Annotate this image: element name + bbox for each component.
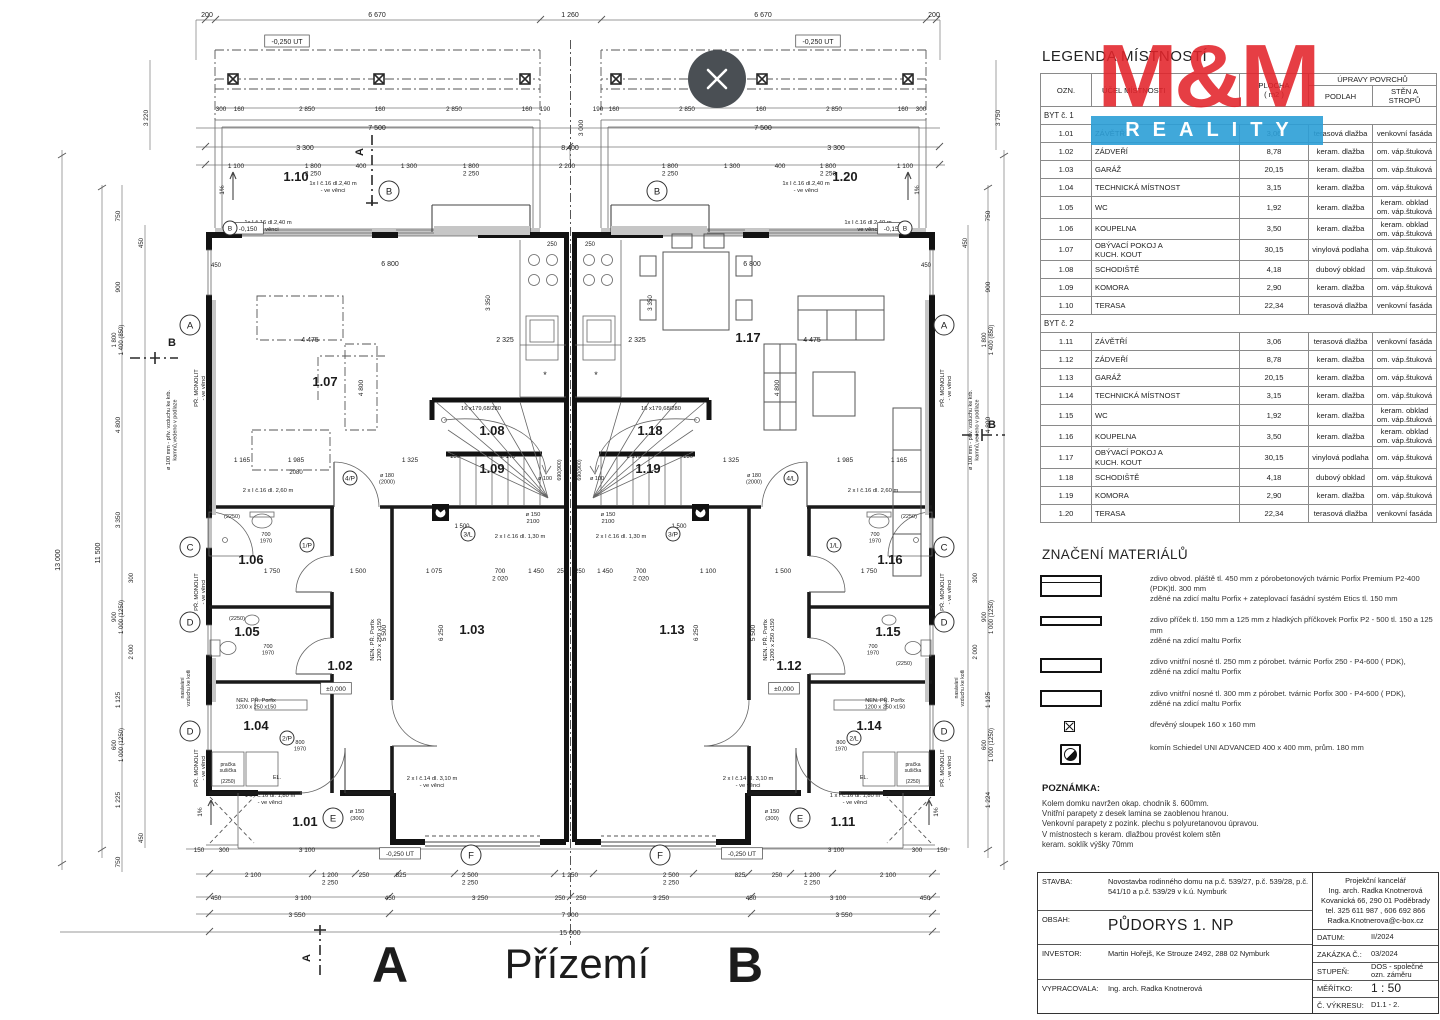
svg-text:PŘ. MONOLIT- ve věnci: PŘ. MONOLIT- ve věnci — [938, 369, 953, 407]
svg-text:2/L: 2/L — [849, 736, 859, 743]
svg-text:6 250: 6 250 — [438, 624, 445, 641]
svg-text:Přízemí: Přízemí — [505, 940, 650, 987]
svg-text:1 2002 250: 1 2002 250 — [804, 872, 821, 887]
svg-text:1 450: 1 450 — [528, 568, 544, 575]
svg-text:450: 450 — [211, 895, 222, 902]
investor-value: Martin Hořejš, Ke Strouze 2492, 288 02 N… — [1106, 945, 1272, 978]
svg-text:-0,250 UT: -0,250 UT — [386, 851, 414, 858]
svg-text:2 x I č.16 dl. 1,30 m: 2 x I č.16 dl. 1,30 m — [596, 534, 647, 540]
note-line: Vnitřní parapety z desek lamina se zaobl… — [1042, 809, 1438, 819]
svg-text:150: 150 — [194, 847, 205, 854]
vykres-label: Č. VÝKRESU: — [1313, 1001, 1369, 1010]
svg-text:1 8002 250: 1 8002 250 — [662, 163, 679, 178]
svg-text:1 100: 1 100 — [228, 163, 245, 170]
vypracovala-label: VYPRACOVALA: — [1038, 980, 1106, 1013]
svg-text:(2250): (2250) — [221, 779, 236, 785]
wall-450-icon — [1040, 575, 1102, 597]
svg-text:1.10: 1.10 — [283, 169, 308, 184]
svg-text:160: 160 — [756, 106, 767, 113]
svg-text:7 500: 7 500 — [754, 125, 772, 132]
svg-text:(2250): (2250) — [901, 514, 917, 520]
svg-text:7001970: 7001970 — [869, 532, 881, 545]
col-upravy: ÚPRAVY POVRCHŮ — [1309, 74, 1437, 86]
svg-text:8001970: 8001970 — [294, 740, 306, 753]
svg-text:ø 1502100: ø 1502100 — [526, 512, 541, 525]
svg-text:1 x I č.16 dl. 1,80 m- ve věnc: 1 x I č.16 dl. 1,80 m- ve věnci — [830, 793, 881, 806]
svg-text:1.17: 1.17 — [735, 330, 760, 345]
svg-text:B: B — [228, 226, 233, 233]
svg-text:3 000: 3 000 — [578, 119, 585, 136]
svg-text:1 2002 250: 1 2002 250 — [322, 872, 339, 887]
investor-label: INVESTOR: — [1038, 945, 1106, 978]
svg-text:2 x I č.16 dl. 1,30 m: 2 x I č.16 dl. 1,30 m — [495, 534, 546, 540]
svg-text:250: 250 — [575, 569, 586, 575]
svg-text:1/L: 1/L — [829, 543, 839, 550]
svg-text:B: B — [727, 937, 763, 993]
note-line: Venkovní parapety z pozink. plechu s pol… — [1042, 819, 1438, 829]
material-item: zdivo obvod. pláště tl. 450 mm z pórobet… — [1040, 574, 1438, 605]
meritko-label: MĚŘÍTKO: — [1313, 984, 1369, 993]
svg-text:2 100: 2 100 — [880, 872, 897, 879]
svg-text:3 100: 3 100 — [299, 847, 316, 854]
legend-room-row: 1.05WC1,92keram. dlažbakeram. obkladom. … — [1041, 197, 1437, 218]
svg-text:1 250: 1 250 — [562, 872, 579, 879]
svg-text:1.08: 1.08 — [479, 423, 504, 438]
zakazka-value: 03/2024 — [1369, 950, 1398, 959]
legend-title: LEGENDA MÍSTNOSTÍ — [1042, 48, 1438, 65]
svg-text:250: 250 — [772, 872, 783, 879]
svg-text:EL.: EL. — [273, 775, 282, 781]
wall-300-icon — [1040, 690, 1102, 707]
svg-text:6 800: 6 800 — [381, 261, 399, 268]
svg-text:1%: 1% — [914, 185, 921, 195]
close-button[interactable] — [688, 50, 746, 108]
legend-room-row: 1.14TECHNICKÁ MÍSTNOST3,15keram. dlažbao… — [1041, 386, 1437, 404]
svg-text:2 175: 2 175 — [500, 454, 516, 460]
svg-text:3 550: 3 550 — [835, 912, 852, 919]
svg-text:6 670: 6 670 — [368, 12, 386, 19]
svg-text:A: A — [941, 321, 948, 332]
svg-text:NEN. PŘ. Porfix1200 x 250 x150: NEN. PŘ. Porfix1200 x 250 x150 — [368, 619, 383, 662]
svg-text:6001 000 (1250): 6001 000 (1250) — [982, 728, 995, 762]
svg-text:160: 160 — [234, 106, 245, 113]
svg-text:1 985: 1 985 — [837, 457, 854, 464]
svg-text:B: B — [903, 226, 908, 233]
material-item: zdivo vnitřní nosné tl. 250 mm z pórobet… — [1040, 657, 1438, 678]
svg-text:±0,000: ±0,000 — [774, 686, 794, 693]
svg-text:NEN. PŘ. Porfix1200 x 250 x150: NEN. PŘ. Porfix1200 x 250 x150 — [761, 619, 776, 662]
material-item: komín Schiedel UNI ADVANCED 400 x 400 mm… — [1040, 743, 1438, 765]
svg-text:150: 150 — [450, 454, 461, 460]
svg-text:690(900): 690(900) — [577, 459, 583, 480]
svg-text:ø 100 mm - přív. vzduchu ke kr: ø 100 mm - přív. vzduchu ke krb.kamnů,ve… — [968, 390, 981, 470]
svg-text:ø 180(2000): ø 180(2000) — [379, 473, 395, 486]
svg-text:±0,000: ±0,000 — [326, 686, 346, 693]
svg-text:B: B — [654, 187, 660, 198]
meritko-value: 1 : 50 — [1369, 982, 1401, 996]
svg-text:3 300: 3 300 — [296, 145, 314, 152]
svg-text:ø 100: ø 100 — [538, 476, 552, 482]
svg-text:2/P: 2/P — [282, 736, 293, 743]
svg-text:A: A — [187, 321, 194, 332]
svg-text:7002 020: 7002 020 — [492, 568, 508, 582]
svg-text:1.20: 1.20 — [832, 169, 857, 184]
svg-text:250: 250 — [555, 895, 566, 902]
svg-text:7 500: 7 500 — [368, 125, 386, 132]
svg-text:825: 825 — [396, 872, 407, 879]
svg-text:1.03: 1.03 — [459, 622, 484, 637]
materials-legend: ZNAČENÍ MATERIÁLŮ zdivo obvod. pláště tl… — [1040, 547, 1438, 766]
svg-text:2 x I č.14 dl. 3,10 m- ve věnc: 2 x I č.14 dl. 3,10 m- ve věnci — [407, 776, 458, 789]
svg-text:300: 300 — [219, 847, 230, 854]
room-legend-table: OZN. ÚČEL MÍSTNOSTI PLOCHA( m2 ) ÚPRAVY … — [1040, 73, 1437, 523]
svg-text:7002 020: 7002 020 — [633, 568, 649, 582]
svg-text:*: * — [543, 370, 547, 380]
legend-room-row: 1.10TERASA22,34terasová dlažbavenkovní f… — [1041, 296, 1437, 314]
svg-text:1 300: 1 300 — [401, 163, 418, 170]
legend-room-row: 1.13GARÁŽ20,15keram. dlažbaom. váp.štuko… — [1041, 368, 1437, 386]
svg-text:7001970: 7001970 — [260, 532, 272, 545]
svg-text:4 475: 4 475 — [301, 337, 319, 344]
svg-text:450: 450 — [139, 237, 145, 248]
svg-text:3 350: 3 350 — [115, 511, 122, 528]
svg-text:1.13: 1.13 — [659, 622, 684, 637]
legend-room-row: 1.17OBÝVACÍ POKOJ AKUCH. KOUT30,15vinylo… — [1041, 447, 1437, 468]
svg-text:1 985: 1 985 — [288, 457, 305, 464]
svg-text:2 000: 2 000 — [973, 644, 979, 660]
svg-text:1.07: 1.07 — [312, 374, 337, 389]
svg-text:ø 1502100: ø 1502100 — [601, 512, 616, 525]
svg-text:ø 100: ø 100 — [590, 476, 604, 482]
svg-text:250: 250 — [547, 242, 558, 248]
svg-text:7 900: 7 900 — [561, 912, 578, 919]
svg-text:1x I č.16 dl.2,40 m- ve věnci: 1x I č.16 dl.2,40 m- ve věnci — [782, 181, 830, 194]
note-line: V místnostech s keram. dlažbou provést k… — [1042, 830, 1438, 840]
drawing-sheet: .w6{stroke:#121212;stroke-width:6;fill:n… — [0, 0, 1440, 1020]
svg-text:1.01: 1.01 — [292, 814, 317, 829]
legend-room-row: 1.01ZÁVĚTŘÍ3,06terasová dlažbavenkovní f… — [1041, 125, 1437, 143]
svg-text:-0,250 UT: -0,250 UT — [728, 851, 756, 858]
svg-text:1.11: 1.11 — [831, 814, 856, 829]
svg-text:4 800: 4 800 — [115, 416, 122, 433]
svg-text:200: 200 — [928, 12, 940, 19]
svg-text:2 175: 2 175 — [626, 454, 642, 460]
svg-text:3 220: 3 220 — [143, 109, 150, 126]
svg-text:13 000: 13 000 — [55, 549, 62, 571]
svg-text:450: 450 — [963, 237, 969, 248]
svg-text:1 224: 1 224 — [985, 791, 992, 808]
svg-text:pračkasušička: pračkasušička — [905, 762, 922, 774]
legend-room-row: 1.11ZÁVĚTŘÍ3,06terasová dlažbavenkovní f… — [1041, 332, 1437, 350]
svg-text:900: 900 — [115, 281, 122, 292]
svg-text:PŘ. MONOLIT- ve věnci: PŘ. MONOLIT- ve věnci — [938, 749, 953, 787]
svg-text:F: F — [468, 851, 474, 862]
svg-text:2 850: 2 850 — [826, 106, 842, 113]
svg-text:190: 190 — [540, 106, 551, 113]
svg-text:ø 150(300): ø 150(300) — [350, 809, 365, 822]
svg-text:3 100: 3 100 — [828, 847, 845, 854]
svg-text:2 850: 2 850 — [299, 106, 315, 113]
legend-room-row: 1.07OBÝVACÍ POKOJ AKUCH. KOUT30,15vinylo… — [1041, 239, 1437, 260]
svg-text:4 475: 4 475 — [803, 337, 821, 344]
wall-150-icon — [1040, 616, 1102, 626]
svg-text:A: A — [372, 937, 408, 993]
col-ozn: OZN. — [1041, 74, 1092, 107]
svg-text:300: 300 — [129, 572, 135, 583]
office-info: Projekční kancelářIng. arch. Radka Knotn… — [1313, 873, 1438, 930]
floor-plan-drawing: .w6{stroke:#121212;stroke-width:6;fill:n… — [0, 0, 1030, 1020]
svg-text:1/P: 1/P — [302, 543, 313, 550]
svg-text:9001 000 (1250): 9001 000 (1250) — [982, 600, 995, 634]
svg-text:ø 150(300): ø 150(300) — [765, 809, 780, 822]
svg-text:1 225: 1 225 — [115, 791, 122, 808]
svg-text:160: 160 — [375, 106, 386, 113]
svg-text:(2250): (2250) — [229, 616, 245, 622]
svg-text:6 670: 6 670 — [754, 12, 772, 19]
svg-text:900: 900 — [985, 281, 992, 292]
svg-text:2080: 2080 — [289, 470, 303, 476]
svg-text:3 300: 3 300 — [827, 145, 845, 152]
svg-text:3 350: 3 350 — [647, 295, 654, 311]
svg-text:3/P: 3/P — [668, 532, 679, 539]
svg-text:1 125: 1 125 — [115, 691, 122, 708]
svg-text:825: 825 — [735, 872, 746, 879]
svg-text:5 500: 5 500 — [750, 624, 757, 641]
svg-text:B: B — [988, 419, 996, 431]
svg-text:300: 300 — [916, 106, 927, 113]
svg-text:(2250): (2250) — [896, 661, 912, 667]
svg-text:6 250: 6 250 — [693, 624, 700, 641]
svg-text:EL.: EL. — [860, 775, 869, 781]
svg-text:1 260: 1 260 — [561, 12, 579, 19]
svg-text:15 000: 15 000 — [559, 930, 581, 937]
svg-text:1.04: 1.04 — [243, 718, 269, 733]
svg-text:11 500: 11 500 — [95, 542, 102, 563]
svg-text:B: B — [386, 187, 392, 198]
svg-text:400: 400 — [356, 163, 367, 170]
title-block: STAVBA: Novostavba rodinného domu na p.č… — [1037, 872, 1439, 1014]
legend-room-row: 1.16KOUPELNA3,50keram. dlažbakeram. obkl… — [1041, 426, 1437, 447]
svg-text:160: 160 — [522, 106, 533, 113]
svg-text:8 400: 8 400 — [561, 145, 579, 152]
wall-250-icon — [1040, 658, 1102, 673]
legend-room-row: 1.08SCHODIŠTĚ4,18dubový obkladom. váp.št… — [1041, 260, 1437, 278]
svg-text:1 075: 1 075 — [426, 568, 443, 575]
svg-text:16 x179,68/280: 16 x179,68/280 — [461, 406, 501, 412]
svg-text:300: 300 — [973, 572, 979, 583]
svg-text:250: 250 — [585, 242, 596, 248]
svg-text:450: 450 — [211, 263, 222, 269]
svg-text:1.06: 1.06 — [238, 552, 263, 567]
legend-room-row: 1.04TECHNICKÁ MÍSTNOST3,15keram. dlažbao… — [1041, 179, 1437, 197]
svg-text:1.15: 1.15 — [875, 624, 900, 639]
material-item: zdivo příček tl. 150 mm a 125 mm z hladk… — [1040, 615, 1438, 646]
svg-text:D: D — [187, 618, 194, 629]
svg-text:1 125: 1 125 — [985, 691, 992, 708]
materials-title: ZNAČENÍ MATERIÁLŮ — [1042, 547, 1438, 562]
svg-text:3 250: 3 250 — [653, 895, 670, 902]
svg-text:1x I č.16 dl.2,40 m- ve věnci: 1x I č.16 dl.2,40 m- ve věnci — [309, 181, 357, 194]
svg-text:2 5002 250: 2 5002 250 — [462, 872, 479, 887]
svg-text:1 750: 1 750 — [264, 568, 281, 575]
svg-text:450: 450 — [920, 895, 931, 902]
svg-text:(2250): (2250) — [224, 514, 240, 520]
svg-text:1 8001 400 (850): 1 8001 400 (850) — [112, 325, 125, 356]
svg-text:E: E — [330, 814, 336, 825]
svg-text:-0,150: -0,150 — [239, 226, 258, 233]
svg-text:nasávánívzduchu ke kotli: nasávánívzduchu ke kotli — [954, 670, 966, 707]
svg-text:3 750: 3 750 — [995, 109, 1002, 126]
svg-text:200: 200 — [201, 12, 213, 19]
legend-section-row: BYT č. 2 — [1041, 314, 1437, 332]
svg-text:250: 250 — [576, 895, 587, 902]
svg-text:1.18: 1.18 — [637, 423, 662, 438]
stavba-value: Novostavba rodinného domu na p.č. 539/27… — [1106, 873, 1312, 910]
svg-text:2 850: 2 850 — [679, 106, 695, 113]
col-podlah: PODLAH — [1309, 86, 1373, 107]
svg-text:3 100: 3 100 — [830, 895, 847, 902]
svg-text:750: 750 — [115, 210, 122, 221]
svg-text:2 000: 2 000 — [129, 644, 135, 660]
svg-text:1.19: 1.19 — [635, 461, 660, 476]
legend-room-row: 1.15WC1,92keram. dlažbakeram. obkladom. … — [1041, 404, 1437, 425]
svg-text:8001970: 8001970 — [835, 740, 847, 753]
plan-labels: 2006 6701 2606 670200-0,250 UT-0,250 UT3… — [55, 12, 1002, 962]
legend-room-row: 1.18SCHODIŠTĚ4,18dubový obkladom. váp.št… — [1041, 468, 1437, 486]
legend-room-row: 1.19KOMORA2,90keram. dlažbaom. váp.štuko… — [1041, 486, 1437, 504]
svg-text:D: D — [187, 727, 194, 738]
svg-text:9001 000 (1250): 9001 000 (1250) — [112, 600, 125, 634]
svg-text:3 250: 3 250 — [472, 895, 489, 902]
svg-text:3/L: 3/L — [463, 532, 473, 539]
svg-text:250: 250 — [359, 872, 370, 879]
col-plocha: PLOCHA( m2 ) — [1240, 74, 1309, 107]
wood-post-icon — [1064, 721, 1075, 732]
svg-text:-0,250 UT: -0,250 UT — [802, 39, 834, 46]
svg-text:1.14: 1.14 — [856, 718, 882, 733]
svg-text:F: F — [657, 851, 663, 862]
svg-text:PŘ. MONOLIT- ve věnci: PŘ. MONOLIT- ve věnci — [192, 369, 207, 407]
svg-text:1 8001 400 (850): 1 8001 400 (850) — [982, 325, 995, 356]
svg-text:190: 190 — [593, 106, 604, 113]
svg-text:1 100: 1 100 — [897, 163, 914, 170]
svg-text:1 165: 1 165 — [891, 457, 908, 464]
svg-text:450: 450 — [746, 895, 757, 902]
svg-text:150: 150 — [937, 847, 948, 854]
svg-text:ø 100 mm - přív. vzduchu ke kr: ø 100 mm - přív. vzduchu ke krb.kamnů,ve… — [166, 390, 179, 470]
svg-text:1.05: 1.05 — [234, 624, 259, 639]
svg-text:1 x I č.16 dl. 1,80 m- ve věnc: 1 x I č.16 dl. 1,80 m- ve věnci — [245, 793, 296, 806]
svg-text:2 200: 2 200 — [559, 163, 576, 170]
note-line: Kolem domku navržen okap. chodník š. 600… — [1042, 799, 1438, 809]
svg-text:160: 160 — [898, 106, 909, 113]
material-item: zdivo vnitřní nosné tl. 300 mm z pórobet… — [1040, 689, 1438, 710]
obsah-label: OBSAH: — [1038, 911, 1106, 944]
datum-value: II/2024 — [1369, 933, 1394, 942]
svg-text:1.09: 1.09 — [479, 461, 504, 476]
svg-text:(2250): (2250) — [906, 779, 921, 785]
svg-text:1 8002 250: 1 8002 250 — [463, 163, 480, 178]
svg-text:750: 750 — [115, 856, 122, 867]
svg-text:2 x I č.14 dl. 3,10 m- ve věnc: 2 x I č.14 dl. 3,10 m- ve věnci — [723, 776, 774, 789]
svg-text:300: 300 — [912, 847, 923, 854]
datum-label: DATUM: — [1313, 933, 1369, 942]
vypracovala-value: Ing. arch. Radka Knotnerová — [1106, 980, 1205, 1013]
svg-text:2 5002 250: 2 5002 250 — [663, 872, 680, 887]
svg-text:1 300: 1 300 — [724, 163, 741, 170]
note-line: keram. soklík výšky 70mm — [1042, 840, 1438, 850]
plan-footer-labels: APřízemíB — [372, 937, 763, 993]
svg-text:2 325: 2 325 — [628, 337, 646, 344]
svg-text:450: 450 — [385, 895, 396, 902]
notes-title: POZNÁMKA: — [1042, 783, 1438, 794]
notes: POZNÁMKA: Kolem domku navržen okap. chod… — [1040, 783, 1438, 850]
svg-text:pračkasušička: pračkasušička — [220, 762, 237, 774]
svg-text:PŘ. MONOLIT- ve věnci: PŘ. MONOLIT- ve věnci — [192, 573, 207, 611]
material-item: dřevěný sloupek 160 x 160 mm — [1040, 720, 1438, 732]
svg-text:450: 450 — [921, 263, 932, 269]
svg-text:1 325: 1 325 — [402, 457, 419, 464]
svg-text:1 500: 1 500 — [350, 568, 367, 575]
legend-room-row: 1.12ZÁDVEŘÍ8,78keram. dlažbaom. váp.štuk… — [1041, 350, 1437, 368]
svg-text:1%: 1% — [219, 185, 226, 195]
svg-text:A: A — [354, 148, 366, 156]
svg-text:2 850: 2 850 — [446, 106, 462, 113]
svg-text:1 165: 1 165 — [234, 457, 251, 464]
info-panel: LEGENDA MÍSTNOSTÍ OZN. ÚČEL MÍSTNOSTI PL… — [1040, 48, 1438, 850]
svg-text:C: C — [187, 543, 194, 554]
chimney-icon — [1060, 744, 1081, 765]
svg-text:4 800: 4 800 — [358, 379, 365, 396]
svg-text:250: 250 — [557, 569, 568, 575]
svg-text:1.12: 1.12 — [776, 658, 801, 673]
svg-text:1 500: 1 500 — [775, 568, 792, 575]
col-ucel: ÚČEL MÍSTNOSTI — [1092, 74, 1240, 107]
svg-text:2 x I č.16 dl. 2,60 m: 2 x I č.16 dl. 2,60 m — [848, 488, 899, 494]
svg-text:16 x179,68/280: 16 x179,68/280 — [641, 406, 681, 412]
svg-text:150: 150 — [683, 454, 694, 460]
svg-text:450: 450 — [139, 832, 145, 843]
svg-text:300: 300 — [216, 106, 227, 113]
svg-text:750: 750 — [985, 210, 992, 221]
obsah-value: PŮDORYS 1. NP — [1106, 911, 1237, 944]
svg-text:690(900): 690(900) — [557, 459, 563, 480]
svg-text:400: 400 — [775, 163, 786, 170]
svg-text:ø 180(2000): ø 180(2000) — [746, 473, 762, 486]
stupen-label: STUPEŇ: — [1313, 967, 1369, 976]
svg-text:1%: 1% — [197, 807, 204, 817]
svg-text:*: * — [594, 370, 598, 380]
svg-text:2 325: 2 325 — [496, 337, 514, 344]
legend-room-row: 1.03GARÁŽ20,15keram. dlažbaom. váp.štuko… — [1041, 161, 1437, 179]
legend-room-row: 1.06KOUPELNA3,50keram. dlažbakeram. obkl… — [1041, 218, 1437, 239]
svg-text:6001 000 (1250): 6001 000 (1250) — [112, 728, 125, 762]
svg-text:160: 160 — [609, 106, 620, 113]
svg-text:4/P: 4/P — [345, 476, 356, 483]
svg-text:-0,250 UT: -0,250 UT — [271, 39, 303, 46]
svg-text:6 800: 6 800 — [743, 261, 761, 268]
zakazka-label: ZAKÁZKA Č.: — [1313, 950, 1369, 959]
svg-text:7001970: 7001970 — [262, 644, 274, 657]
svg-text:3 350: 3 350 — [485, 295, 492, 311]
svg-text:PŘ. MONOLIT- ve věnci: PŘ. MONOLIT- ve věnci — [192, 749, 207, 787]
svg-text:1 325: 1 325 — [723, 457, 740, 464]
svg-text:2 100: 2 100 — [245, 872, 262, 879]
svg-text:1 450: 1 450 — [597, 568, 613, 575]
svg-text:1 750: 1 750 — [861, 568, 878, 575]
slope-arrows — [208, 172, 932, 825]
svg-text:2 x I č.16 dl. 2,60 m: 2 x I č.16 dl. 2,60 m — [243, 488, 294, 494]
